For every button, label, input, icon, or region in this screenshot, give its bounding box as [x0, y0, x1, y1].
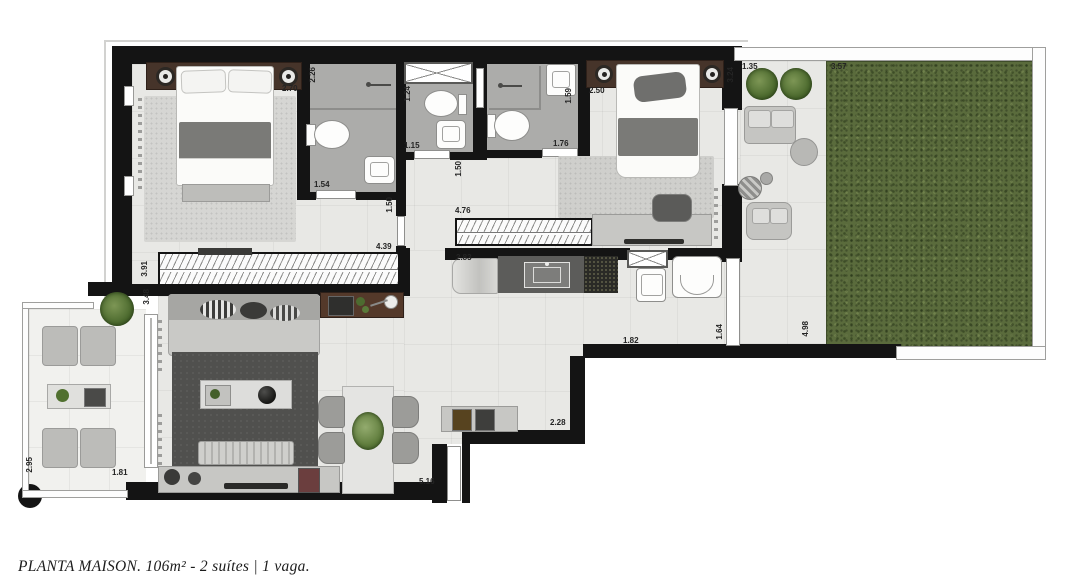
- entrance-door: [447, 446, 461, 501]
- shower-partition: [310, 108, 397, 110]
- wall: [404, 152, 414, 160]
- desk-monitor: [624, 239, 684, 244]
- bathroom1-door: [316, 190, 356, 199]
- washbasin: [436, 120, 466, 149]
- bistro-table: [738, 176, 762, 200]
- plant-pot: [356, 297, 365, 306]
- terrace-parapet: [1032, 47, 1046, 360]
- dining-chair: [392, 396, 419, 428]
- table-lamp: [384, 295, 398, 309]
- dark-cushion: [240, 302, 267, 319]
- dimension-label: 1.76: [553, 140, 569, 148]
- bedroom2-window: [724, 108, 738, 186]
- curtain: [158, 414, 162, 466]
- media-item: [298, 468, 320, 493]
- speaker: [188, 472, 201, 485]
- speaker: [164, 469, 180, 485]
- washing-machine: [672, 256, 722, 298]
- chair-cushion: [770, 208, 788, 224]
- wall: [462, 430, 470, 503]
- dimension-label: 3.91: [141, 261, 149, 277]
- bed-blanket: [179, 122, 271, 160]
- wall-niche: [476, 68, 484, 108]
- wall: [583, 344, 901, 358]
- plant-pot: [210, 389, 220, 399]
- wall: [570, 356, 585, 444]
- ottoman-bench: [198, 441, 294, 465]
- bed-blanket: [618, 118, 698, 156]
- dimension-label: 1.64: [716, 324, 724, 340]
- dimension-label: 1.15: [404, 142, 420, 150]
- dimension-label: 2.83: [456, 254, 472, 262]
- bed-bench: [182, 184, 270, 202]
- balcony-railing: [22, 302, 94, 309]
- bedroom1-window: [124, 86, 134, 106]
- laundry-cabinet: [627, 250, 668, 268]
- grass-area: [826, 61, 1034, 352]
- wall: [297, 192, 316, 200]
- chair-cushion: [752, 208, 770, 224]
- wardrobe: [158, 252, 400, 286]
- framed-art: [452, 409, 472, 431]
- terrace-plant: [746, 68, 778, 100]
- dimension-label: 2.28: [550, 419, 566, 427]
- curtain: [138, 98, 142, 194]
- balcony-armchair: [42, 326, 78, 366]
- pillow: [181, 69, 227, 94]
- wall: [450, 152, 473, 160]
- dimension-label: 1.50: [455, 161, 463, 177]
- soundbar: [224, 483, 288, 489]
- toilet: [494, 110, 530, 141]
- dimension-label: 2.95: [26, 457, 34, 473]
- exterior-contour-line: [104, 40, 106, 302]
- striped-cushion: [200, 300, 236, 319]
- dimension-label: 1.81: [112, 469, 128, 477]
- wall: [487, 150, 542, 158]
- dimension-label: 3.24: [727, 67, 735, 83]
- dimension-label: 1.54: [314, 181, 330, 189]
- striped-cushion: [270, 305, 300, 321]
- balcony-armchair: [80, 326, 116, 366]
- dining-chair: [318, 432, 345, 464]
- terrace-decor: [760, 172, 773, 185]
- wall: [462, 430, 572, 444]
- dimension-label: 2.50: [589, 87, 605, 95]
- side-table: [790, 138, 818, 166]
- framed-art: [475, 409, 495, 431]
- dimension-label: 1.82: [623, 337, 639, 345]
- shower-arm: [369, 84, 391, 86]
- terrace-parapet: [896, 346, 1046, 360]
- shower-box: [489, 66, 541, 110]
- dimension-label: 3.57: [831, 63, 847, 71]
- lavatory-door: [414, 150, 450, 159]
- faucet: [545, 262, 549, 266]
- dimension-label: 1.24: [404, 86, 412, 102]
- terrace-parapet: [734, 47, 1046, 61]
- closet: [455, 218, 593, 246]
- nightstand-lamp: [703, 65, 721, 83]
- toilet: [314, 120, 350, 149]
- dimension-label: 4.39: [376, 243, 392, 251]
- wall: [112, 46, 132, 296]
- dimension-label: 4.76: [455, 207, 471, 215]
- terrace-plant: [780, 68, 812, 100]
- exterior-contour-line: [104, 40, 748, 42]
- bedroom1-window: [124, 176, 134, 196]
- wall: [396, 192, 406, 216]
- balcony-plant: [100, 292, 134, 326]
- plan-caption: PLANTA MAISON. 106m² - 2 suítes | 1 vaga…: [18, 558, 310, 576]
- cooktop: [584, 256, 618, 293]
- shower-arm: [502, 85, 522, 87]
- wardrobe-bench: [198, 248, 252, 255]
- floor-plan: 2.702.261.541.241.151.591.762.503.241.35…: [0, 0, 1080, 540]
- sink-bowl: [533, 267, 561, 283]
- terrace-glass-door: [726, 258, 740, 346]
- desk-chair: [652, 194, 692, 222]
- sofa-cushion: [771, 110, 794, 128]
- nightstand-lamp: [595, 65, 613, 83]
- dimension-label: 1.35: [742, 63, 758, 71]
- washbasin: [364, 156, 395, 184]
- balcony-railing: [22, 490, 128, 498]
- nightstand-lamp: [156, 67, 175, 86]
- plant-pot: [56, 389, 69, 402]
- toilet-cistern: [458, 94, 467, 115]
- sofa-cushion: [748, 110, 771, 128]
- curtain: [158, 320, 162, 372]
- linen-closet: [404, 62, 473, 84]
- dimension-label: 5.16: [419, 478, 435, 486]
- toilet: [424, 90, 458, 117]
- cabinet-tray: [328, 296, 354, 316]
- dimension-label: 1.50: [386, 197, 394, 213]
- floor-plan-page: 2.702.261.541.241.151.591.762.503.241.35…: [0, 0, 1080, 587]
- dimension-label: 4.98: [802, 321, 810, 337]
- bed-fold: [179, 158, 271, 181]
- curtain: [714, 188, 718, 244]
- dimension-label: 2.26: [309, 67, 317, 83]
- dimension-label: 1.59: [565, 88, 573, 104]
- laundry-sink-bowl: [641, 274, 663, 296]
- bedroom1-door: [397, 216, 405, 246]
- dimension-label: 2.70: [282, 85, 298, 93]
- table-tray: [84, 388, 106, 407]
- dining-chair: [318, 396, 345, 428]
- balcony-armchair: [80, 428, 116, 468]
- refrigerator: [452, 258, 498, 294]
- table-plant: [352, 412, 384, 450]
- dimension-label: 3.48: [143, 289, 151, 305]
- plant-pot: [362, 306, 369, 313]
- wall: [432, 444, 447, 503]
- balcony-armchair: [42, 428, 78, 468]
- pillow: [228, 69, 273, 94]
- door-track: [150, 318, 152, 464]
- dining-chair: [392, 432, 419, 464]
- decor-sphere: [258, 386, 276, 404]
